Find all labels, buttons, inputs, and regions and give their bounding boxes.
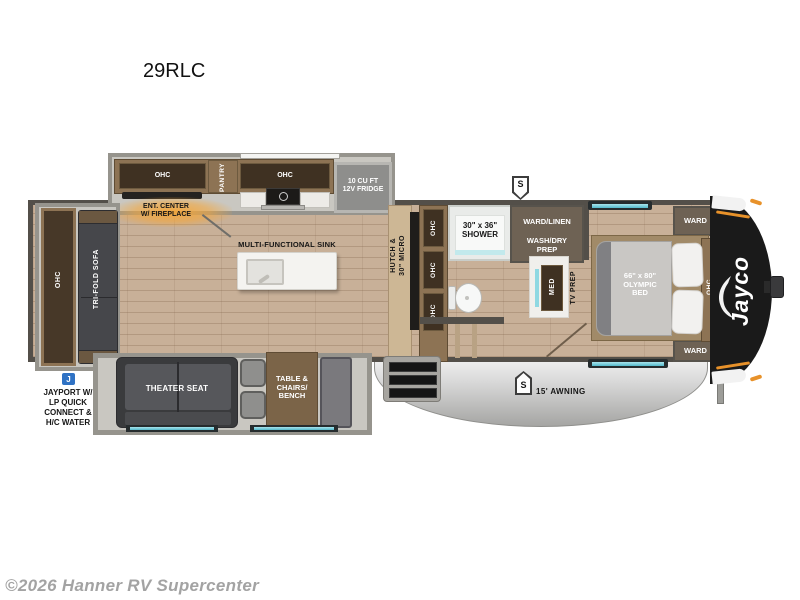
jayport-icon-letter: J [62,375,75,384]
hutch-ohc-mid: OHC [423,251,444,289]
bedroom-window-bottom-glass [592,362,664,366]
rear-ohc-label: OHC [55,271,63,288]
vanity: MED [529,256,569,318]
jayport-icon: J [62,373,75,385]
dinette-table: TABLE & CHAIRS/ BENCH [266,352,318,430]
ohc-left-label: OHC [120,172,205,180]
med-cabinet: MED [541,265,563,311]
cooktop-drawer [261,205,305,210]
shower-glass [455,250,505,255]
bedroom-wall [584,205,589,260]
bath-half-wall [420,317,504,324]
sink-label: MULTI-FUNCTIONAL SINK [197,241,377,250]
dinette-chair-2 [240,391,266,419]
burner-icon [279,192,288,201]
pantry-label: PANTRY [219,163,226,192]
living-window-2 [250,425,338,432]
hutch-ohc-top: OHC [423,209,444,247]
sofa-armrest-top [79,211,117,224]
sink-basin [246,259,284,285]
trifold-sofa: TRI-FOLD SOFA [78,210,118,364]
trifold-sofa-label: TRI-FOLD SOFA [93,249,101,309]
fridge-label: 10 CU FT 12V FRIDGE [337,178,389,194]
theater-footrest [125,412,231,425]
jayport-label: JAYPORT W/ LP QUICK CONNECT & H/C WATER [22,388,114,428]
hutch-counter [388,205,412,362]
med-label: MED [549,278,557,295]
theater-seat: THEATER SEAT [116,357,238,428]
hitch-box [770,276,784,298]
hutch-ohc-bottom: OHC [423,293,444,331]
bedroom-window-bottom [588,359,668,368]
bedroom-window-top-glass [592,204,648,208]
bath-post-2 [472,324,477,358]
nose-stripe-bottom [716,361,750,369]
shower-label: 30" x 36" SHOWER [450,221,510,240]
nose-stripe-top [716,210,750,218]
ward-linen-label: WARD/LINEN [512,218,582,227]
shower: 30" x 36" SHOWER [448,205,512,261]
tv-prep-label: TV PREP [570,271,578,304]
bed-blanket-fold [597,242,611,335]
wash-dry-label: WASH/DRY PREP [512,237,582,254]
entry-steps [383,356,441,402]
kitchen-island [237,252,337,290]
bedroom-window-top [588,201,652,210]
hutch-ohc-top-label: OHC [430,220,437,236]
ohc-cabinet-left: OHC [119,163,206,189]
step-tread-2 [389,375,437,385]
theater-seat-label: THEATER SEAT [117,384,237,393]
page-title: 29RLC [143,60,205,83]
microwave-strip [410,212,419,330]
toilet [448,283,482,313]
living-window-1 [126,425,218,432]
nose-corner-bottom [711,368,746,384]
jayco-wordmark: Jayco [727,243,753,339]
toilet-flush-dot [465,296,469,300]
nose-marker-bottom [750,374,763,382]
ohc-mid-label: OHC [241,172,329,180]
dinette-bench [320,357,352,428]
bed-pillow-bottom [671,289,704,334]
speaker-badge-top: S [512,176,529,200]
bed-mattress: 66" x 80" OLYMPIC BED [596,241,672,336]
watermark: ©2026 Hanner RV Supercenter [5,576,259,596]
fridge: 10 CU FT 12V FRIDGE [334,162,392,213]
bed-pillow-top [671,242,704,287]
bath-post-1 [455,324,460,358]
floorplan-page: 29RLC OHC PANTRY OHC ENT. CENTER W/ FIRE… [0,0,800,600]
awning-label: 15' AWNING [536,387,586,396]
step-tread-1 [389,362,437,372]
rear-ohc-cabinet: OHC [41,208,76,366]
table-label: TABLE & CHAIRS/ BENCH [267,375,317,401]
dinette-chair-1 [240,359,266,387]
hutch-label: HUTCH & 30" MICRO [389,235,407,276]
nose-marker-top [750,198,763,206]
speaker-badge-awning-letter: S [515,380,532,391]
vanity-sink-strip [535,269,539,307]
nose-cap: Jayco [710,196,772,384]
nose-corner-top [711,195,746,211]
cooktop [266,188,300,205]
pantry-cabinet: PANTRY [208,160,238,193]
living-window-1-glass [130,427,214,430]
ward-linen-cabinet: WARD/LINEN WASH/DRY PREP [510,205,584,263]
hutch-ohc-mid-label: OHC [430,262,437,278]
speaker-badge-top-letter: S [512,179,529,190]
living-window-2-glass [254,427,334,430]
step-tread-3 [389,388,437,398]
ohc-cabinet-mid: OHC [240,163,330,189]
bed-label: 66" x 80" OLYMPIC BED [611,272,669,298]
